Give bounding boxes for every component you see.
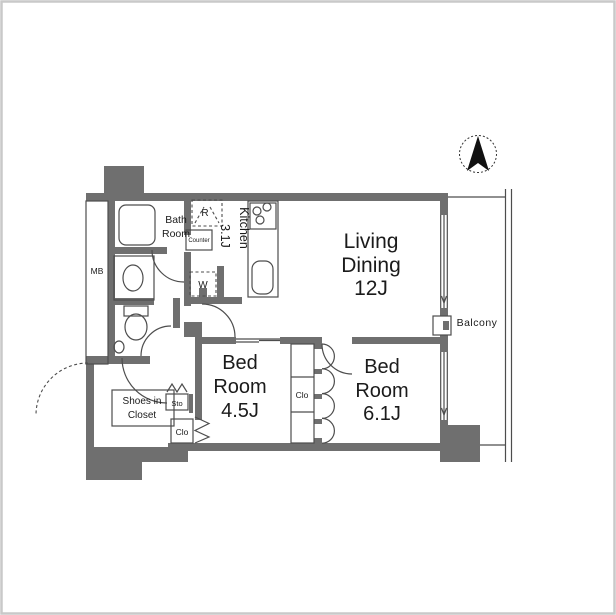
wall-kitchen-bottom (184, 297, 242, 304)
label-bed-large-3: 6.1J (363, 403, 401, 425)
label-closet-mid: Clo (296, 390, 309, 400)
label-kitchen: Kitchen (237, 207, 251, 249)
folding-door-mid (322, 369, 334, 394)
label-shoes-closet-1: Shoes in (123, 396, 162, 407)
wall-bottom (168, 443, 448, 451)
label-bath-1: Bath (165, 214, 187, 226)
label-meter-box: MB (91, 266, 104, 276)
closet-door-post (314, 438, 322, 443)
label-shoes-closet-2: Closet (128, 410, 157, 421)
label-balcony: Balcony (457, 317, 498, 329)
wall-stub-hall-top (184, 322, 202, 337)
closet-door-post (314, 344, 322, 349)
wall-toilet-right (173, 298, 180, 328)
label-bed-small-1: Bed (222, 352, 258, 374)
ac-sleeve-mark (443, 321, 449, 330)
wall-bath-wash-divider (115, 247, 167, 254)
label-bed-large-1: Bed (364, 356, 400, 378)
label-refrigerator: R (201, 208, 208, 219)
folding-door-mid (322, 418, 334, 443)
door-arc-front-door (36, 363, 88, 415)
label-bed-large-2: Room (355, 380, 408, 402)
room-living-dining (230, 201, 440, 337)
wall-block-top-left (104, 166, 144, 196)
compass (460, 136, 497, 173)
meter-box (86, 201, 108, 364)
label-washer: W (198, 280, 208, 291)
folding-door-mid (322, 394, 334, 419)
room-washroom (115, 254, 184, 298)
wall-entrance-divider (86, 356, 150, 364)
label-storage: Sto (171, 399, 182, 408)
closet-door-post (314, 369, 322, 374)
wall-bedroom-small-left (195, 337, 202, 420)
floor-plan: Living Dining 12J Bed Room 4.5J Bed Room… (0, 0, 616, 615)
label-bed-small-3: 4.5J (221, 400, 259, 422)
floor-plan-canvas: Living Dining 12J Bed Room 4.5J Bed Room… (0, 0, 616, 615)
label-closet-hall: Clo (176, 427, 189, 437)
label-living-1: Living (344, 230, 399, 253)
label-living-3: 12J (354, 277, 388, 300)
wall-post-storage (189, 394, 193, 413)
label-bed-small-2: Room (213, 376, 266, 398)
wall-wash-toilet-divider (108, 298, 154, 305)
label-bath-2: Room (162, 228, 190, 240)
label-kitchen-size: 3.1J (218, 224, 232, 248)
wall-left-lower (86, 356, 94, 462)
label-living-2: Dining (341, 254, 401, 277)
door-opening-bedroom-large (322, 336, 352, 345)
label-counter: Counter (188, 238, 209, 244)
wall-block-bottom-left (86, 447, 142, 480)
closet-door-post (314, 394, 322, 399)
closet-door-post (314, 419, 322, 424)
folding-door-mid (322, 344, 334, 369)
